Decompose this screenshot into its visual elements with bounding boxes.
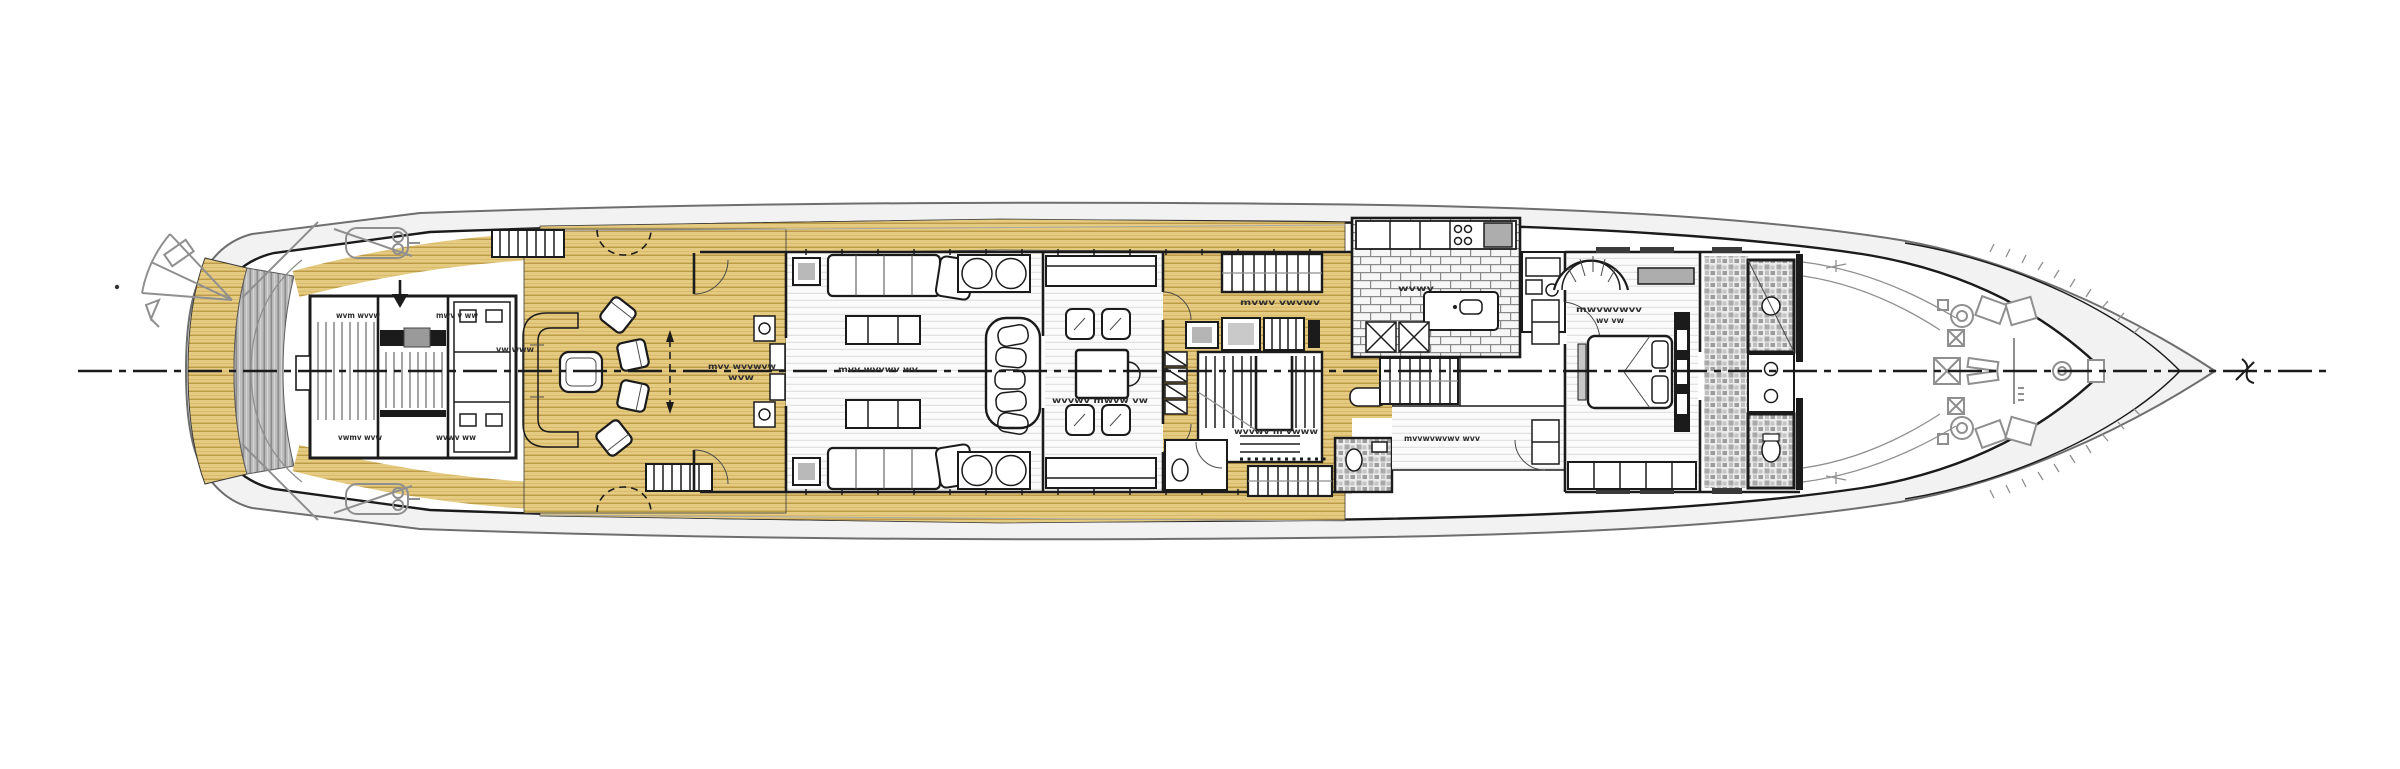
tender-garage [296, 280, 516, 458]
galley-counter-top [1356, 221, 1516, 249]
wind-arrow-icon [146, 300, 159, 327]
room-label-scribble: wvwv [1398, 284, 1434, 293]
room-label-scribble: wvvwv m vwww [1234, 427, 1318, 436]
entry-side-table-bottom [754, 402, 775, 427]
master-dresser [1638, 268, 1694, 284]
salon-sofa-top [828, 255, 975, 300]
room-label-scribble: mwv v ww [436, 311, 478, 320]
salon-c-sofa [986, 318, 1040, 435]
room-label-scribble: vw www [496, 345, 534, 354]
room-label-scribble: mvv wvvwv wv [838, 365, 918, 374]
round-pouf-pair-bottom [958, 452, 1030, 489]
water-closet [1748, 414, 1794, 488]
garage-winch [404, 328, 430, 347]
room-label-scribble: wvw [728, 373, 754, 382]
round-pouf-pair-top [958, 255, 1030, 292]
yacht-deck-plan-page: { "meta": { "drawing_type": "yacht main … [0, 0, 2400, 769]
entry-side-table-top [754, 316, 775, 341]
bar-cabinet-row [1186, 318, 1320, 350]
crew-stairs-down [1380, 358, 1458, 404]
reference-dot [115, 285, 119, 289]
transom-door-hatch [296, 356, 310, 390]
room-label-scribble: mvv wvvwvw [708, 362, 776, 371]
room-label-scribble: wvvwv mwvw vw [1052, 396, 1148, 405]
fridge [1484, 223, 1512, 247]
room-label-scribble: mvvwvwvwv wvv [1404, 434, 1480, 443]
room-label-scribble: mvwv vwvwv [1240, 298, 1320, 307]
aft-deck-chair [616, 338, 649, 371]
garage-sill [380, 410, 446, 417]
coffee-table-top [846, 316, 920, 344]
aft-deck-chair [616, 379, 649, 412]
salon-cabinet-bottom [793, 458, 820, 485]
galley [1352, 218, 1520, 357]
coffee-table-bottom [846, 400, 920, 428]
boarding-stairs-bottom [646, 464, 712, 491]
vanity [1748, 354, 1794, 412]
room-label-scribble: wvm wvvw [336, 311, 380, 320]
boarding-stairs-top [492, 230, 564, 257]
room-label-scribble: vwmv wvw [338, 433, 382, 442]
stairs-down-block-bottom [1248, 466, 1332, 496]
forward-bulkhead [1796, 254, 1803, 362]
garage-right-compartment [454, 302, 510, 452]
galley-island [1424, 292, 1498, 330]
master-wardrobe-sofa [1568, 462, 1696, 489]
room-label-scribble: wvwv ww [436, 433, 476, 442]
shower [1748, 260, 1794, 352]
salon-cabinet-top [793, 258, 820, 285]
day-head-starboard-mosaic [1335, 438, 1392, 492]
sideboard-top [1046, 256, 1156, 286]
day-head-port [1165, 440, 1227, 490]
room-label-scribble: mwvwvwvv [1576, 305, 1642, 314]
room-label-scribble: wv vw [1596, 316, 1624, 325]
salon-sofa-bottom [828, 444, 975, 489]
deck-plan-canvas: wvm wvvw mwv v ww vwmv wvw wvwv ww vw ww… [0, 0, 2400, 769]
sideboard-bottom [1046, 458, 1156, 488]
stairs-up-block [1222, 254, 1322, 292]
